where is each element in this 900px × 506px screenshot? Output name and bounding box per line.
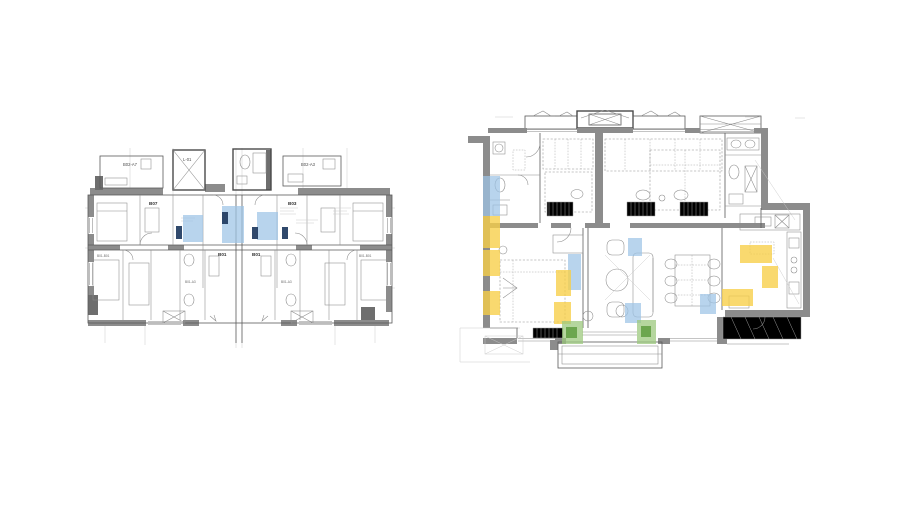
highlight-green-dark-west bbox=[566, 327, 577, 338]
highlight-yellow-west-wall-2 bbox=[483, 250, 500, 276]
highlight-yellow-master-2 bbox=[554, 302, 571, 324]
bedroom-b bbox=[605, 139, 722, 216]
room-label-shaft: L-01 bbox=[183, 157, 192, 162]
highlight-yellow-west-wall-3 bbox=[483, 291, 500, 315]
core-label-right: B01 bbox=[252, 252, 261, 257]
floor-plan-right bbox=[455, 110, 815, 375]
highlight-blue-west-wall bbox=[483, 176, 500, 216]
highlight-yellow-kitchen-3 bbox=[722, 289, 753, 306]
highlight-navy-4 bbox=[282, 227, 288, 239]
highlight-blue-right-core bbox=[257, 212, 278, 240]
top-rooms bbox=[100, 149, 341, 190]
highlight-navy-3 bbox=[252, 227, 258, 239]
edge-label-left: B01-B01 bbox=[97, 254, 110, 258]
bath-label-left: B01-A3 bbox=[185, 280, 196, 284]
room-label-top-left: B02-A7 bbox=[123, 162, 138, 167]
highlight-navy-2 bbox=[222, 212, 228, 224]
edge-label-right: B01-B01 bbox=[359, 254, 372, 258]
page-canvas: B02-A7 L-01 B02-A3 B07 B03 B01 B01 B01-B… bbox=[0, 0, 900, 506]
highlight-yellow-kitchen-1 bbox=[740, 245, 772, 263]
highlight-blue-left-core bbox=[183, 215, 203, 242]
dimension-lines bbox=[85, 148, 395, 348]
highlight-green-dark-east bbox=[641, 326, 651, 337]
highlight-blue-armchair bbox=[628, 238, 642, 256]
bath-left bbox=[493, 142, 540, 215]
highlight-yellow-master-1 bbox=[556, 270, 571, 296]
highlight-blue-center-core bbox=[222, 206, 244, 243]
floor-plan-left: B02-A7 L-01 B02-A3 B07 B03 B01 B01 B01-B… bbox=[85, 148, 395, 348]
room-label-top-right: B02-A3 bbox=[301, 162, 316, 167]
floor-plan-right-svg bbox=[455, 110, 815, 375]
floor-plan-left-svg: B02-A7 L-01 B02-A3 B07 B03 B01 B01 B01-B… bbox=[85, 148, 395, 348]
highlight-yellow-west-wall-1 bbox=[483, 216, 500, 248]
highlight-overlays bbox=[176, 206, 288, 243]
highlight-navy-1 bbox=[176, 226, 182, 239]
unit-label-right: B03 bbox=[288, 201, 297, 206]
highlight-blue-dining-chair bbox=[700, 294, 716, 314]
bath-label-right: B01-A3 bbox=[281, 280, 292, 284]
unit-label-left: B07 bbox=[149, 201, 158, 206]
core-label-left: B01 bbox=[218, 252, 227, 257]
bedroom-a bbox=[543, 139, 593, 216]
highlight-yellow-kitchen-2 bbox=[762, 266, 778, 288]
